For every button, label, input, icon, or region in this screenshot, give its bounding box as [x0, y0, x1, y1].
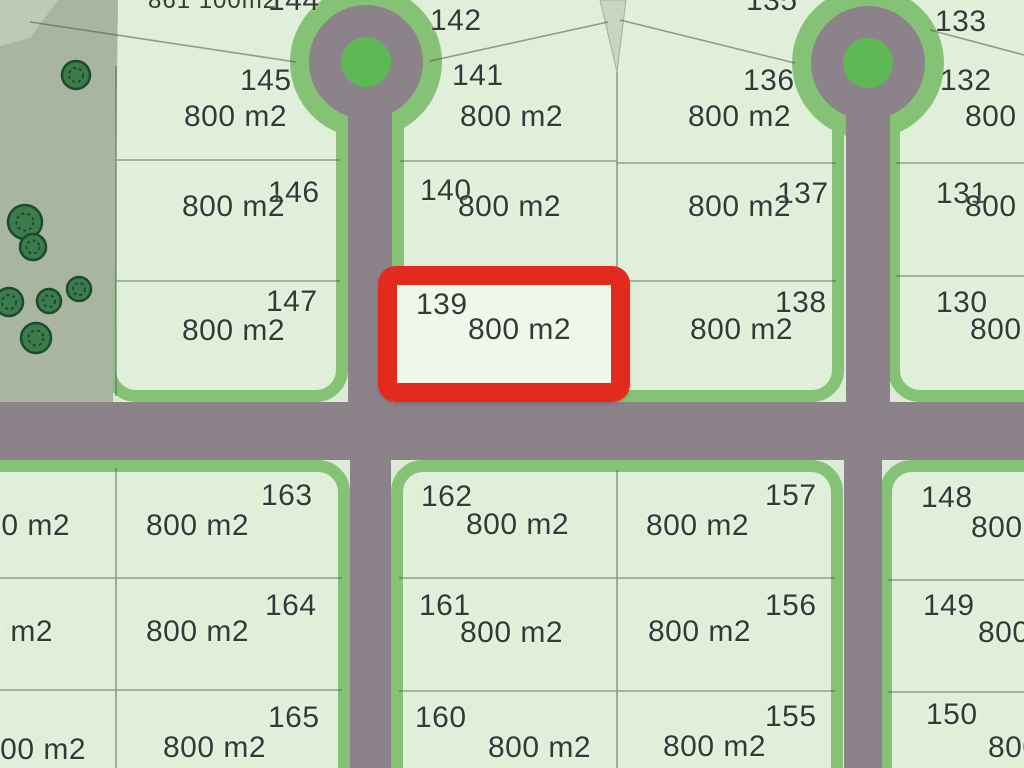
lot-164-area: 800 m2: [146, 615, 249, 648]
lot-row2-left-area: 800 m2: [0, 615, 53, 648]
lot-155-number: 155: [765, 700, 817, 733]
lot-130-area: 800 m2: [970, 313, 1024, 346]
lot-156-number: 156: [765, 589, 817, 622]
lot-136-area: 800 m2: [688, 100, 791, 133]
lot-144-number: 144: [268, 0, 320, 17]
lot-139-area: 800 m2: [468, 313, 571, 346]
lot-156-area: 800 m2: [648, 615, 751, 648]
lot-162-number: 162: [421, 480, 473, 513]
lot-138-area: 800 m2: [690, 313, 793, 346]
lot-163-number: 163: [261, 479, 313, 512]
lot-141-area: 800 m2: [460, 100, 563, 133]
lot-162-area: 800 m2: [466, 508, 569, 541]
lot-131-area: 800 m2: [965, 190, 1024, 223]
lot-148-area: 800 m2: [971, 511, 1024, 544]
lot-141-number: 141: [452, 59, 504, 92]
lot-146-area: 800 m2: [182, 190, 285, 223]
lot-145-area: 800 m2: [184, 100, 287, 133]
lot-148-number: 148: [921, 481, 973, 514]
lot-155-area: 800 m2: [663, 730, 766, 763]
lot-165-number: 165: [268, 701, 320, 734]
lot-160-area: 800 m2: [488, 731, 591, 764]
lot-150-area: 800 m2: [988, 731, 1024, 764]
lot-157-number: 157: [765, 479, 817, 512]
lot-161-area: 800 m2: [460, 616, 563, 649]
lot-row3-left-area: 800 m2: [0, 733, 86, 766]
parcel-map: 861 100m2 144142135133145800 m2141800 m2…: [0, 0, 1024, 768]
lot-142-number: 142: [430, 4, 482, 37]
lot-labels-layer: 144142135133145800 m2141800 m2136800 m21…: [0, 0, 1024, 768]
lot-145-number: 145: [240, 64, 292, 97]
lot-157-area: 800 m2: [646, 509, 749, 542]
lot-163-area: 800 m2: [146, 509, 249, 542]
lot-136-number: 136: [743, 64, 795, 97]
lot-149-area: 800 m2: [978, 616, 1024, 649]
lot-150-number: 150: [926, 698, 978, 731]
lot-140-area: 800 m2: [458, 190, 561, 223]
lot-160-number: 160: [415, 701, 467, 734]
lot-135-number: 135: [746, 0, 798, 17]
lot-132-area: 800 m2: [965, 100, 1024, 133]
lot-164-number: 164: [265, 589, 317, 622]
lot-132-number: 132: [940, 64, 992, 97]
lot-147-area: 800 m2: [182, 314, 285, 347]
lot-149-number: 149: [923, 589, 975, 622]
lot-133-number: 133: [935, 5, 987, 38]
lot-139-number: 139: [416, 288, 468, 321]
lot-row1-left-area: 800 m2: [0, 509, 70, 542]
lot-137-area: 800 m2: [688, 190, 791, 223]
lot-165-area: 800 m2: [163, 731, 266, 764]
